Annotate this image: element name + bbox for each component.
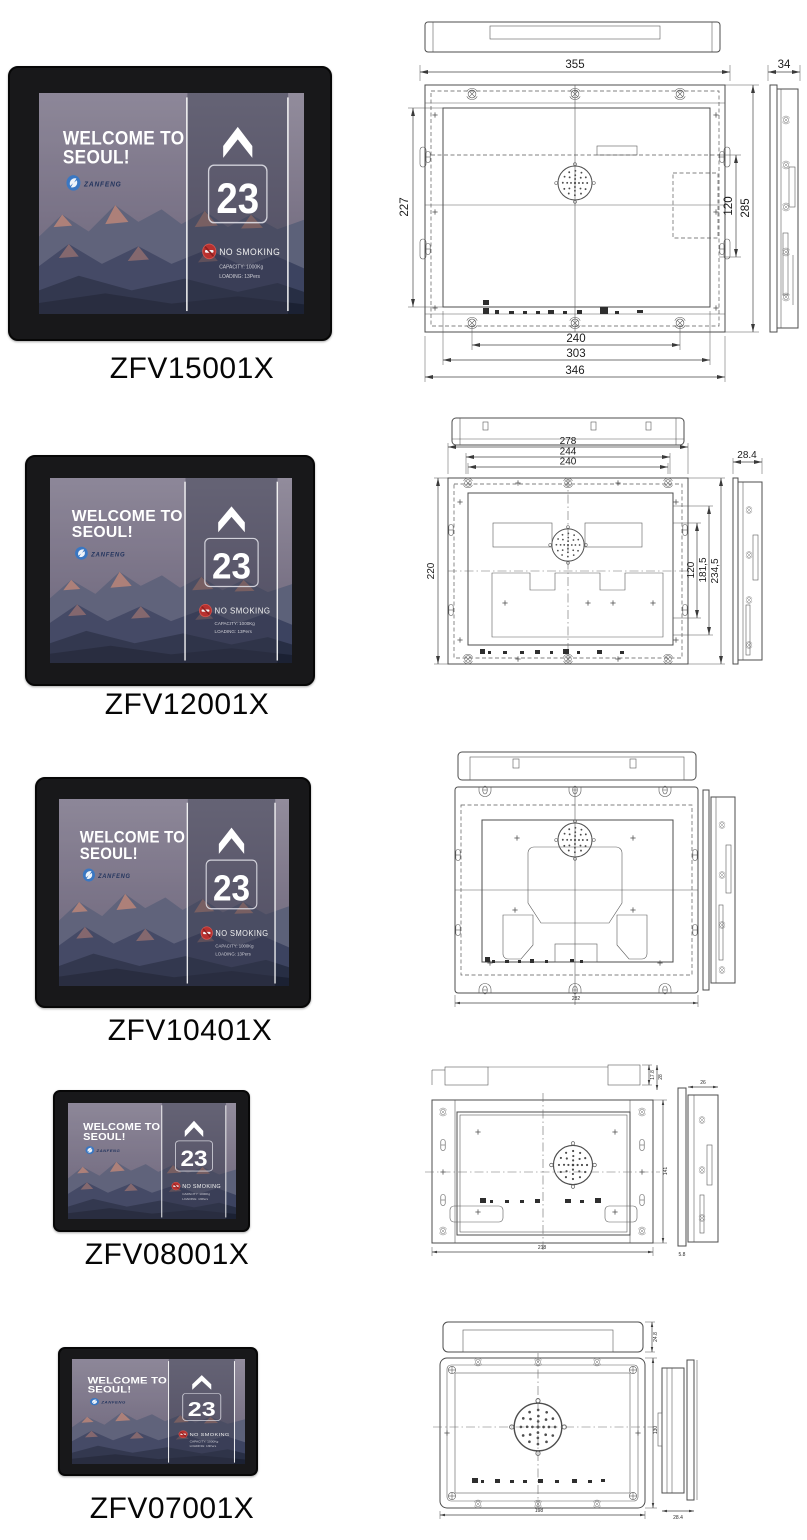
welcome-line2: SEOUL! (63, 147, 130, 168)
model-name: ZFV08001X (17, 1240, 317, 1270)
dimensions: 218 141 (432, 1100, 669, 1256)
dim-depth: 28.4 (737, 450, 757, 461)
floor-number: 23 (212, 546, 251, 586)
side-view (703, 790, 735, 990)
elevator-display-artwork: 23 NO SMOKING CAPACITY: 1000Kg LOADING: … (59, 799, 289, 986)
front-view (420, 85, 730, 332)
display-screen: 23 NO SMOKING CAPACITY: 1000Kg LOADING: … (59, 799, 289, 986)
loading-label: LOADING: 13Pers (182, 1197, 208, 1201)
dim-top-c: 240 (560, 457, 577, 468)
product-photo-zfv10401x: 23 NO SMOKING CAPACITY: 1000Kg LOADING: … (35, 777, 311, 1008)
dim-bottom-width: 282 (572, 996, 581, 1002)
dim-right-outer: 285 (740, 198, 752, 217)
dim-right-height: 130 (653, 1426, 659, 1435)
dimensions: 282 (455, 995, 698, 1007)
no-smoking-icon (172, 1182, 180, 1190)
top-view (458, 752, 696, 780)
front-view (448, 478, 688, 664)
capacity-label: CAPACITY: 1000Kg (219, 264, 263, 270)
dim-bottom-c: 346 (565, 365, 584, 377)
dim-side-depth: 28.4 (673, 1515, 683, 1521)
zanfeng-logo-icon (75, 547, 88, 560)
welcome-line1: WELCOME TO (72, 508, 183, 525)
loading-label: LOADING: 13Pers (215, 629, 253, 634)
side-view: 28.4 (658, 1360, 697, 1521)
left-haze-overlay (39, 93, 187, 314)
welcome-line1: WELCOME TO (83, 1122, 160, 1133)
display-screen: 23 NO SMOKING CAPACITY: 1000Kg LOADING: … (72, 1359, 245, 1464)
dim-right-c: 234,5 (710, 558, 721, 583)
dim-right-height: 141 (663, 1167, 669, 1176)
left-haze-overlay (59, 799, 188, 986)
no-smoking-label: NO SMOKING (190, 1432, 230, 1437)
front-view (455, 786, 698, 1005)
technical-drawing-zfv08001x: 17.8 28 (420, 1060, 807, 1265)
floor-number: 23 (213, 869, 250, 909)
side-view: 26 5.8 (678, 1080, 718, 1258)
dim-bottom-width: 198 (535, 1508, 544, 1514)
divider-line-left (161, 1105, 162, 1217)
divider-line-right (274, 803, 275, 984)
top-view: 24.8 (443, 1322, 659, 1352)
no-smoking-label: NO SMOKING (182, 1184, 221, 1190)
capacity-label: CAPACITY: 1000Kg (215, 943, 254, 948)
product-photo-zfv15001x: 23 NO SMOKING CAPACITY: 1000Kg LOADING: … (8, 66, 332, 341)
top-view: 17.8 28 (432, 1065, 664, 1090)
technical-drawing-zfv12001x: 278 244 240 220 120 181,5 234,5 28.4 (425, 410, 805, 678)
floor-number: 23 (216, 174, 259, 222)
dimensions: 198 130 (440, 1358, 659, 1519)
dimensions: 355 34 227 120 285 240 303 346 (399, 59, 800, 382)
zanfeng-brand-text: ZANFENG (97, 874, 131, 880)
capacity-label: CAPACITY: 1000Kg (215, 621, 256, 626)
dim-left-height: 227 (399, 197, 411, 216)
dim-bottom-a: 240 (566, 333, 585, 345)
zanfeng-brand-text: ZANFENG (100, 1400, 126, 1404)
zanfeng-brand-text: ZANFENG (90, 551, 125, 558)
zanfeng-brand-text: ZANFENG (83, 181, 122, 188)
welcome-line1: WELCOME TO (88, 1376, 167, 1386)
product-photo-zfv08001x: 23 NO SMOKING CAPACITY: 1000Kg LOADING: … (53, 1090, 250, 1232)
display-screen: 23 NO SMOKING CAPACITY: 1000Kg LOADING: … (39, 93, 304, 314)
dim-side-bottom: 5.8 (679, 1252, 686, 1258)
dim-left-height: 220 (426, 562, 437, 579)
dim-right-b: 181,5 (698, 557, 709, 582)
welcome-line2: SEOUL! (80, 845, 138, 863)
no-smoking-label: NO SMOKING (215, 607, 271, 616)
floor-number: 23 (188, 1397, 216, 1420)
model-name: ZFV10401X (40, 1016, 340, 1046)
dim-bottom-width: 218 (538, 1245, 547, 1251)
zanfeng-logo-icon (66, 175, 80, 190)
catalog-page: 23 NO SMOKING CAPACITY: 1000Kg LOADING: … (0, 0, 807, 1540)
left-haze-overlay (68, 1103, 162, 1219)
display-screen: 23 NO SMOKING CAPACITY: 1000Kg LOADING: … (68, 1103, 236, 1219)
display-screen: 23 NO SMOKING CAPACITY: 1000Kg LOADING: … (50, 478, 292, 663)
welcome-line1: WELCOME TO (63, 128, 185, 149)
elevator-display-artwork: 23 NO SMOKING CAPACITY: 1000Kg LOADING: … (50, 478, 292, 663)
divider-line-left (186, 97, 188, 311)
dim-depth: 34 (778, 59, 791, 71)
product-photo-zfv07001x: 23 NO SMOKING CAPACITY: 1000Kg LOADING: … (58, 1347, 258, 1476)
no-smoking-icon (201, 927, 213, 939)
front-view (425, 1093, 660, 1250)
no-smoking-icon (199, 604, 211, 616)
divider-line-right (277, 482, 278, 661)
no-smoking-icon (203, 244, 216, 259)
connector-marks (480, 1198, 601, 1203)
top-view (425, 22, 720, 52)
side-view (733, 478, 762, 664)
floor-number: 23 (180, 1146, 207, 1171)
capacity-label: CAPACITY: 1000Kg (182, 1192, 210, 1196)
front-view (433, 1353, 653, 1513)
left-haze-overlay (72, 1359, 169, 1464)
connector-marks (480, 649, 624, 654)
model-name: ZFV12001X (37, 690, 337, 720)
dim-bottom-b: 303 (566, 348, 585, 360)
technical-drawing-zfv15001x: 355 34 227 120 285 240 303 346 (395, 15, 807, 407)
divider-line-right (225, 1105, 226, 1217)
loading-label: LOADING: 13Pers (215, 951, 251, 956)
capacity-label: CAPACITY: 1000Kg (190, 1440, 219, 1444)
left-haze-overlay (50, 478, 186, 663)
model-name: ZFV07001X (22, 1494, 322, 1524)
technical-drawing-zfv07001x: 24.8 (425, 1318, 807, 1528)
product-photo-zfv12001x: 23 NO SMOKING CAPACITY: 1000Kg LOADING: … (25, 455, 315, 686)
divider-line-right (234, 1361, 235, 1463)
zanfeng-logo-icon (85, 1146, 94, 1154)
technical-drawing-zfv10401x: 282 (430, 745, 807, 1013)
dim-top-width: 355 (565, 59, 584, 71)
divider-line-left (184, 482, 185, 661)
elevator-display-artwork: 23 NO SMOKING CAPACITY: 1000Kg LOADING: … (72, 1359, 245, 1464)
dim-right-a: 120 (686, 561, 697, 578)
welcome-line2: SEOUL! (88, 1385, 132, 1395)
divider-line-right (287, 97, 289, 311)
dim-top-b: 28 (658, 1074, 664, 1080)
zanfeng-logo-icon (83, 869, 95, 882)
welcome-line2: SEOUL! (72, 524, 133, 541)
divider-line-left (187, 803, 188, 984)
dim-top-a: 278 (560, 436, 577, 447)
loading-label: LOADING: 13Pers (190, 1444, 217, 1448)
divider-line-left (168, 1361, 169, 1463)
dimensions: 278 244 240 220 120 181,5 234,5 28.4 (426, 436, 762, 664)
loading-label: LOADING: 13Pers (219, 274, 260, 280)
elevator-display-artwork: 23 NO SMOKING CAPACITY: 1000Kg LOADING: … (39, 93, 304, 314)
elevator-display-artwork: 23 NO SMOKING CAPACITY: 1000Kg LOADING: … (68, 1103, 236, 1219)
model-name: ZFV15001X (12, 354, 372, 384)
welcome-line1: WELCOME TO (80, 829, 186, 847)
dim-right-inner: 120 (723, 196, 735, 215)
dim-top-a: 17.8 (650, 1070, 656, 1080)
zanfeng-logo-icon (90, 1398, 99, 1405)
dim-top-depth: 24.8 (653, 1332, 659, 1342)
no-smoking-icon (179, 1431, 188, 1438)
side-view (770, 85, 798, 332)
zanfeng-brand-text: ZANFENG (96, 1148, 121, 1153)
connector-marks (472, 1478, 605, 1483)
no-smoking-label: NO SMOKING (215, 929, 268, 938)
welcome-line2: SEOUL! (83, 1132, 125, 1143)
no-smoking-label: NO SMOKING (219, 247, 280, 258)
dim-side-top: 26 (700, 1080, 706, 1086)
